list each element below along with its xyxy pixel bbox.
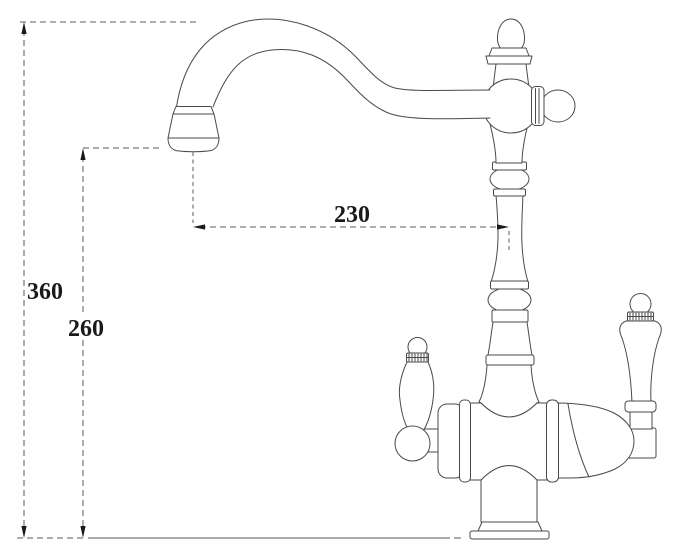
- dimension-overall-height: 360: [21, 22, 63, 538]
- column-bead-2: [488, 288, 531, 313]
- spout: [176, 19, 495, 119]
- dimension-outlet-height: 260: [68, 148, 104, 538]
- right-handle-neck: [630, 410, 652, 429]
- left-handle-lever: [399, 362, 433, 431]
- column-taper: [488, 322, 532, 355]
- right-handle-ring: [625, 401, 656, 412]
- left-handle: [395, 338, 442, 462]
- base-dome: [481, 466, 537, 523]
- left-handle-knuckle: [395, 426, 430, 461]
- faucet-body: [438, 400, 634, 482]
- dimension-label-260: 260: [68, 316, 104, 342]
- body-ring-left: [460, 400, 471, 482]
- right-handle-lever: [620, 321, 662, 402]
- column-bead-1: [490, 168, 529, 191]
- side-knob-collar: [532, 87, 545, 126]
- drawing-canvas: 360 260 230: [0, 0, 678, 560]
- dimension-label-360: 360: [27, 279, 63, 305]
- right-handle-ball: [630, 294, 651, 315]
- faucet-dimension-drawing: 360 260 230: [0, 0, 678, 560]
- column-ring-2: [494, 189, 526, 196]
- dimension-label-230: 230: [334, 202, 370, 228]
- nozzle-cup: [168, 114, 219, 152]
- base-step: [478, 522, 542, 531]
- finial-collar-lower: [486, 56, 532, 64]
- body-right-cap: [556, 403, 634, 478]
- arrow-down-icon: [21, 526, 26, 538]
- arrow-left-icon: [193, 224, 205, 229]
- left-handle-collar: [407, 353, 429, 362]
- body-ring-right: [547, 400, 559, 482]
- nozzle-band: [173, 107, 214, 115]
- side-knob: [541, 90, 575, 122]
- finial-collar-upper: [489, 48, 529, 56]
- base-plate: [470, 531, 549, 539]
- arrow-up-icon: [80, 148, 85, 160]
- upper-assembly: [168, 19, 575, 152]
- arrow-up-icon: [21, 22, 26, 34]
- column-ring-4: [492, 310, 528, 322]
- column-ring-5: [486, 355, 534, 365]
- arrow-down-icon: [80, 526, 85, 538]
- finial-egg: [497, 19, 524, 52]
- column-ring-3: [491, 281, 529, 289]
- column: [479, 124, 539, 417]
- dimension-spout-reach: 230: [193, 152, 509, 251]
- spout-nozzle: [168, 107, 219, 152]
- right-handle-collar: [628, 312, 654, 321]
